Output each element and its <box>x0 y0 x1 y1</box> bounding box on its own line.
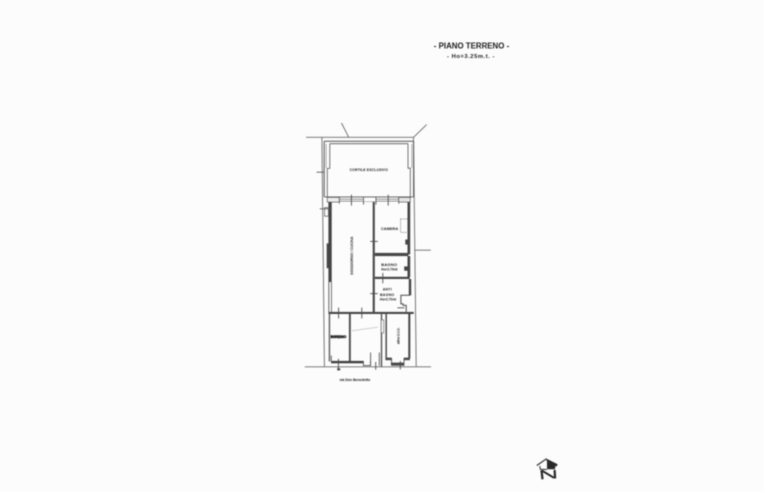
svg-text:SOGGIORNO / CUCINA: SOGGIORNO / CUCINA <box>350 236 354 275</box>
svg-text:via Don Benedetto: via Don Benedetto <box>339 378 371 382</box>
svg-text:BAGNO: BAGNO <box>380 293 394 297</box>
svg-text:ANTI: ANTI <box>383 288 392 292</box>
svg-text:altra U.I.U.: altra U.I.U. <box>396 327 400 344</box>
svg-text:- PIANO TERRENO -: - PIANO TERRENO - <box>434 41 510 50</box>
svg-text:CAMERA: CAMERA <box>381 227 398 231</box>
svg-text:- Ho=3.25m.t. -: - Ho=3.25m.t. - <box>447 54 495 60</box>
svg-text:Ho=2.70mt: Ho=2.70mt <box>381 268 398 272</box>
svg-text:Ho=2.70mt: Ho=2.70mt <box>380 298 397 302</box>
svg-text:BAGNO: BAGNO <box>381 262 397 267</box>
svg-text:CORTILE ESCLUSIVO: CORTILE ESCLUSIVO <box>350 168 388 172</box>
svg-text:INGRESSO: INGRESSO <box>330 335 346 339</box>
